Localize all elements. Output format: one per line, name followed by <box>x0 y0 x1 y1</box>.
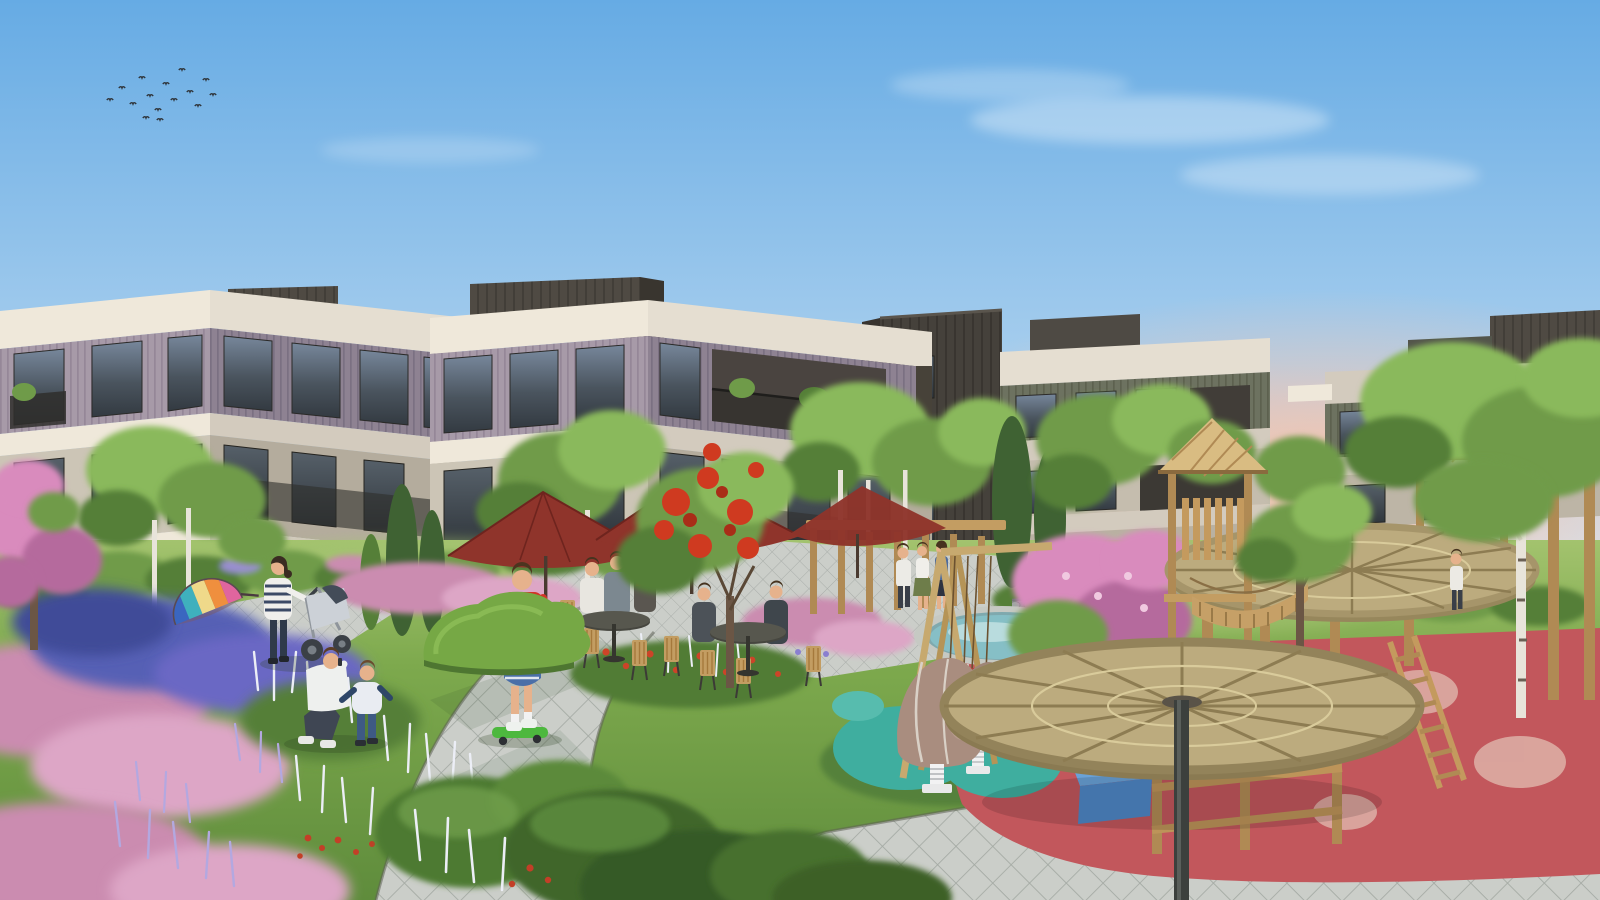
balcony-plant <box>12 383 36 401</box>
canopy-pole <box>1174 700 1189 900</box>
window <box>510 350 558 428</box>
window <box>168 335 202 411</box>
rendering-canvas <box>0 0 1600 900</box>
window <box>660 343 700 420</box>
window <box>360 350 408 425</box>
balcony-plant <box>729 378 755 398</box>
rubber-circle-teal-3 <box>832 691 884 721</box>
window <box>224 336 272 411</box>
window <box>292 343 340 418</box>
window <box>444 355 492 433</box>
window <box>92 341 142 417</box>
